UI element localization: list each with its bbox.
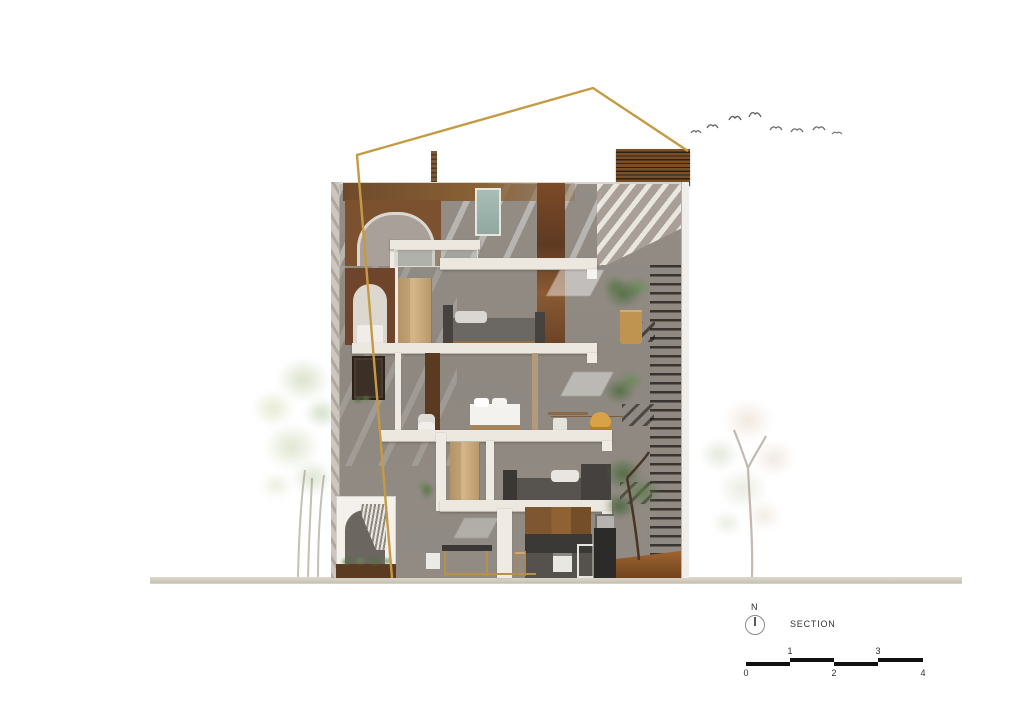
north-label: N bbox=[751, 602, 758, 612]
scale-segment-0-1 bbox=[746, 662, 790, 666]
scale-label-above: 1 bbox=[787, 646, 792, 656]
section-label: SECTION bbox=[790, 619, 836, 629]
section-drawing-canvas: N SECTION 1 3 0 2 4 bbox=[0, 0, 1024, 724]
tree-trunks-left bbox=[298, 470, 324, 577]
compass-needle bbox=[754, 617, 756, 626]
bird-icon bbox=[769, 124, 783, 133]
scale-bar: 1 3 0 2 4 bbox=[746, 646, 926, 680]
indoor-tree-trunk bbox=[627, 452, 649, 560]
bird-icon bbox=[748, 109, 762, 120]
scale-segment-2-3 bbox=[834, 662, 878, 666]
scale-label-below: 2 bbox=[831, 668, 836, 678]
scale-segment-1-2 bbox=[790, 658, 834, 662]
bird-icon bbox=[831, 129, 843, 137]
scale-segment-3-4 bbox=[878, 658, 923, 662]
scale-label-above: 3 bbox=[875, 646, 880, 656]
scale-label-below: 4 bbox=[920, 668, 925, 678]
bird-icon bbox=[728, 113, 742, 123]
section-overlay bbox=[0, 0, 1024, 724]
bird-icon bbox=[706, 122, 719, 131]
bird-icon bbox=[812, 124, 826, 133]
scale-label-below: 0 bbox=[743, 668, 748, 678]
north-compass-icon bbox=[745, 615, 765, 635]
bird-icon bbox=[690, 128, 702, 136]
gold-section-outline bbox=[357, 88, 688, 578]
birds-flock bbox=[684, 104, 854, 148]
bird-icon bbox=[790, 126, 804, 135]
tree-trunk-right bbox=[734, 430, 766, 577]
